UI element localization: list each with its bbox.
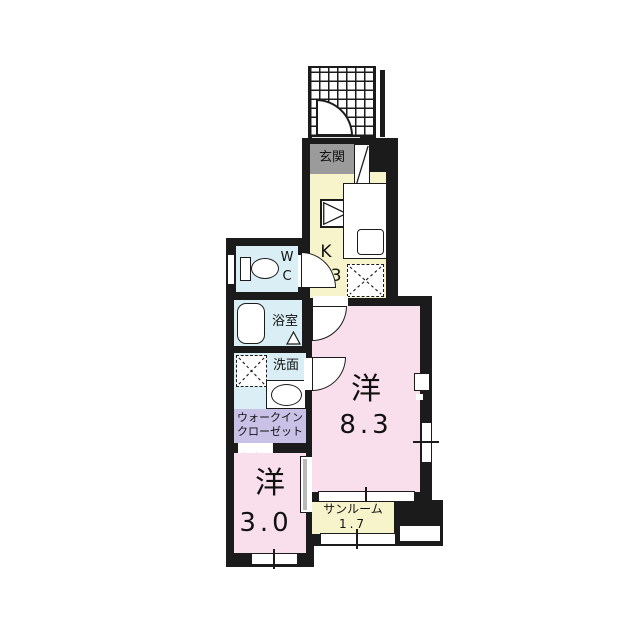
vanity-sink-icon bbox=[271, 384, 302, 406]
western-room-large-size: 8.3 bbox=[312, 412, 420, 439]
western-room-large-label: 洋 bbox=[312, 374, 420, 406]
shoe-cabinet bbox=[354, 144, 370, 188]
wall-niche-dot bbox=[416, 394, 423, 400]
porch-side-wall bbox=[380, 70, 385, 137]
wic-label-1: ウォークイン bbox=[234, 412, 306, 424]
sunroom-exterior-step bbox=[400, 526, 440, 541]
bath-door-icon bbox=[286, 331, 301, 345]
washing-machine-space-icon bbox=[236, 355, 267, 387]
bathtub-icon bbox=[237, 303, 265, 344]
appliance-space-icon bbox=[347, 264, 384, 297]
wc-label-c: C bbox=[282, 269, 291, 284]
toilet-bowl-icon bbox=[251, 258, 279, 279]
western-room-small-size: 3.0 bbox=[230, 510, 302, 537]
wic-label-2: クローゼット bbox=[234, 426, 306, 438]
toilet-tank-icon bbox=[240, 257, 251, 281]
sliding-door-leaf bbox=[303, 459, 307, 510]
wall-niche bbox=[414, 373, 430, 391]
window-sunroom-bottom bbox=[320, 533, 396, 545]
wc-label: W C bbox=[278, 249, 296, 287]
window-tick bbox=[413, 441, 439, 443]
wc-window bbox=[227, 254, 235, 285]
window-tick bbox=[273, 549, 275, 569]
genkan-label: 玄関 bbox=[310, 151, 354, 165]
sunroom-size: 1.7 bbox=[312, 518, 394, 531]
x-mark-icon bbox=[237, 356, 266, 386]
washroom-label: 洗面 bbox=[266, 359, 306, 373]
bathroom-label: 浴室 bbox=[266, 315, 304, 329]
floor-plan: 玄関 K 3.3 W C 浴室 洗面 ウォークイン クロ bbox=[0, 0, 640, 640]
wc-label-w: W bbox=[281, 250, 294, 265]
window-tick bbox=[356, 529, 358, 549]
cabinet-diagonal-icon bbox=[355, 145, 369, 187]
x-mark-icon bbox=[348, 265, 383, 296]
sunroom-label: サンルーム bbox=[312, 503, 394, 516]
kitchen-sink bbox=[357, 229, 384, 255]
western-room-small-label: 洋 bbox=[234, 468, 306, 500]
